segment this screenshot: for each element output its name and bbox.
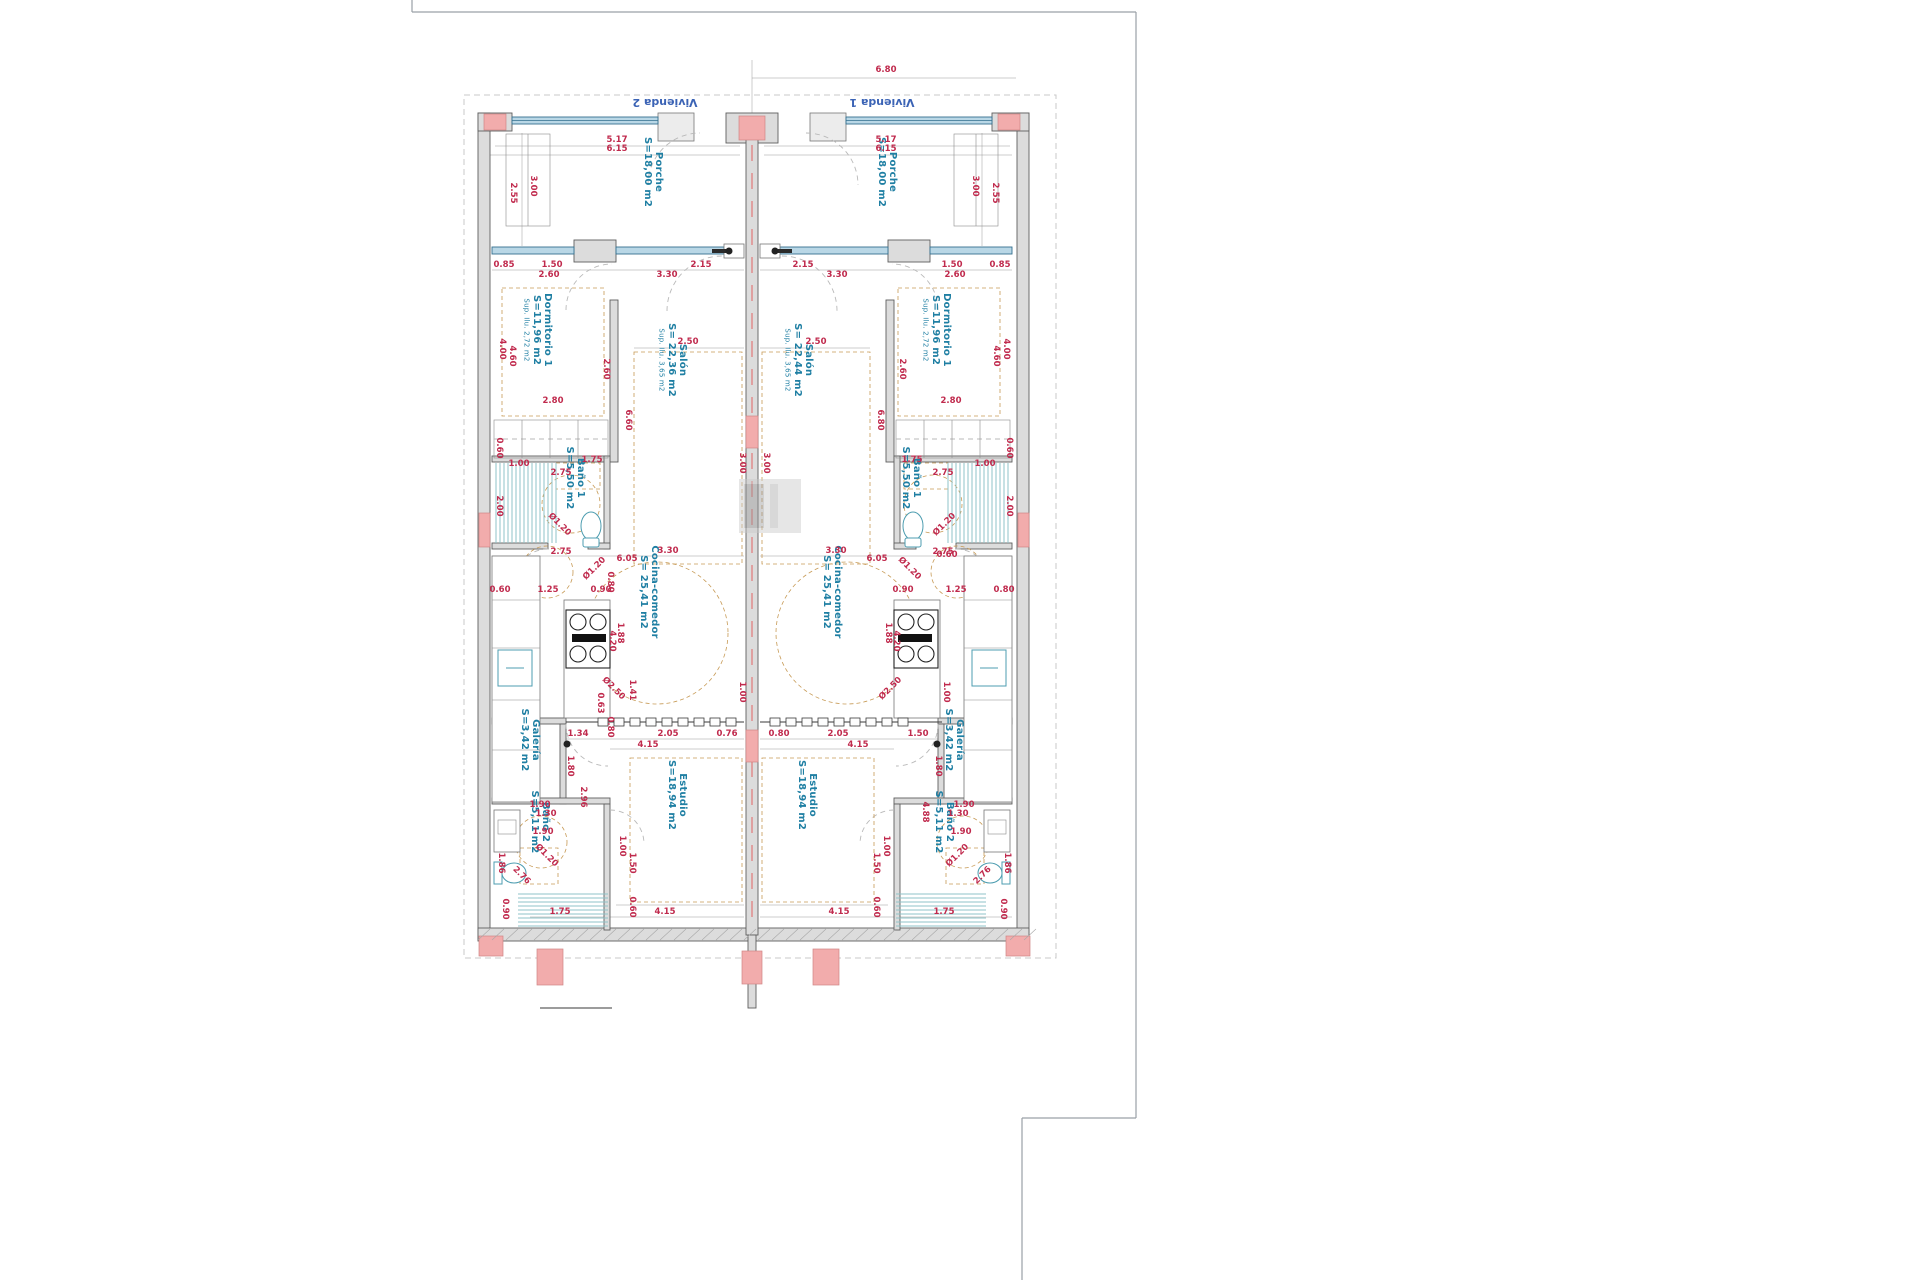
column [813, 949, 839, 985]
dimension-label: 2.80 [941, 396, 962, 406]
window [780, 247, 888, 254]
window [492, 247, 574, 254]
unit-titles: Vivienda 2 Vivienda 1 [632, 96, 914, 109]
door-hinge-icon [726, 248, 733, 255]
dimension-label: Ø1.20 [533, 841, 561, 869]
room-label-dormitorio1: Dormitorio 1S=11,96 m2Sup. Ilu. 2,72 m2 [922, 293, 953, 367]
dimension-label: 1.30 [536, 809, 557, 819]
room-label-salon_left: SalónS= 22,36 m2Sup. Ilu. 3,65 m2 [658, 323, 690, 397]
salon-zone [634, 352, 742, 564]
dimension-label: 2.80 [543, 396, 564, 406]
dimension-label: 4.20 [607, 631, 617, 652]
dimension-label: 2.50 [806, 337, 827, 347]
column [1006, 936, 1030, 956]
door-leaf [712, 249, 726, 253]
dimension-label: 2.60 [897, 359, 907, 380]
dimension-label: Ø1.20 [896, 554, 924, 582]
dimension-label: Ø1.20 [580, 554, 608, 582]
dimension-label: 0.63 [595, 693, 605, 714]
dimension-label: 1.90 [951, 827, 972, 837]
dimension-label: 3.30 [657, 270, 678, 280]
dimension-label: 1.75 [582, 455, 603, 465]
floor-plan-sheet: Vivienda 2 Vivienda 1 PorcheS=18,00 m2Po… [0, 0, 1920, 1280]
dimension-label: 1.00 [509, 459, 530, 469]
dimension-label: 1.00 [881, 836, 891, 857]
dimension-label: 1.25 [538, 585, 559, 595]
dimension-label: 3.00 [761, 453, 771, 474]
dimension-label: 2.05 [828, 729, 849, 739]
dimension-label: 1.00 [617, 836, 627, 857]
dimension-label: 4.60 [991, 346, 1001, 367]
column [479, 513, 490, 547]
dimension-label: 2.00 [1004, 496, 1014, 517]
dimension-label: 0.85 [990, 260, 1011, 270]
dimension-label: 2.75 [551, 468, 572, 478]
dimension-label: 0.60 [1004, 438, 1014, 459]
dimension-label: 3.00 [970, 176, 980, 197]
dimension-label: 6.15 [607, 144, 628, 154]
room-label-salon_right: SalónS= 22,44 m2Sup. Ilu. 3,65 m2 [784, 323, 816, 397]
dimension-label: 2.00 [494, 496, 504, 517]
floor-plan-drawing: Vivienda 2 Vivienda 1 PorcheS=18,00 m2Po… [0, 0, 1920, 1280]
dimension-label: 0.80 [994, 585, 1015, 595]
dimension-label: 6.05 [867, 554, 888, 564]
column [998, 114, 1020, 130]
dimension-label: 1.00 [975, 459, 996, 469]
dimension-label: 4.15 [638, 740, 659, 750]
dimension-label: 0.90 [591, 585, 612, 595]
dimension-label: 1.30 [948, 809, 969, 819]
dimension-label: 0.90 [893, 585, 914, 595]
dimension-label: 0.90 [500, 899, 510, 920]
column [1018, 513, 1029, 547]
dimension-label: Ø1.20 [943, 841, 971, 869]
dimension-label: 1.50 [871, 853, 881, 874]
dimension-label: 0.90 [998, 899, 1008, 920]
dimension-label: 1.86 [1002, 853, 1012, 874]
dimension-label: 2.15 [691, 260, 712, 270]
column [484, 114, 506, 130]
dimension-label: 6.80 [875, 410, 885, 431]
dimension-label: 3.00 [528, 176, 538, 197]
dimension-label: 1.00 [737, 682, 747, 703]
dimension-label: 6.15 [876, 144, 897, 154]
unit-title-vivienda-2: Vivienda 2 [632, 96, 697, 109]
dimension-label: 0.60 [627, 897, 637, 918]
dimension-label: 1.80 [565, 756, 575, 777]
column [537, 949, 563, 985]
room-label-cocina: Cocina-comedorS= 25,41 m2 [638, 545, 660, 638]
column [739, 116, 765, 140]
dimension-label: 4.00 [497, 339, 507, 360]
dimension-label: 1.41 [627, 680, 637, 701]
dimension-label: 4.15 [655, 907, 676, 917]
room-label-estudio: EstudioS=18,94 m2 [796, 760, 818, 830]
dimension-label: 2.96 [578, 787, 588, 808]
dimension-label: 1.80 [933, 756, 943, 777]
dimension-label: 2.55 [990, 183, 1000, 204]
dimension-label: 2.05 [658, 729, 679, 739]
dimension-label: 0.80 [605, 717, 615, 738]
dimension-label: 4.88 [920, 802, 930, 823]
dimension-label: 1.90 [533, 827, 554, 837]
door-hinge-icon [772, 248, 779, 255]
dimension-label: 0.85 [494, 260, 515, 270]
dimension-label: 3.30 [826, 546, 847, 556]
column [479, 936, 503, 956]
dimension-label: 6.60 [623, 410, 633, 431]
dimension-label: 1.50 [627, 853, 637, 874]
dimension-label: 2.60 [601, 359, 611, 380]
dimension-label: 3.30 [827, 270, 848, 280]
door-hinge-icon [934, 741, 941, 748]
door-leaf [778, 249, 792, 253]
dimension-label: 0.80 [769, 729, 790, 739]
dimension-label: Ø1.20 [546, 510, 574, 538]
dimension-label: 1.50 [542, 260, 563, 270]
dimension-label: 1.50 [942, 260, 963, 270]
dimension-label: 0.60 [871, 897, 881, 918]
dimension-label: 2.60 [945, 270, 966, 280]
dimension-label: 0.60 [937, 550, 958, 560]
dimension-label: 2.60 [539, 270, 560, 280]
dimension-label: 2.75 [551, 547, 572, 557]
room-label-dormitorio1: Dormitorio 1S=11,96 m2Sup. Ilu. 2,72 m2 [523, 293, 554, 367]
dimension-label: 3.00 [737, 453, 747, 474]
watermark [739, 479, 801, 533]
dimension-label: 4.15 [848, 740, 869, 750]
dimension-label: 2.50 [678, 337, 699, 347]
dimension-label: 0.60 [494, 438, 504, 459]
dimension-label: 0.76 [717, 729, 738, 739]
dimension-label: 1.75 [934, 907, 955, 917]
dimension-label: 4.15 [829, 907, 850, 917]
window [930, 247, 1012, 254]
dimension-label: 6.05 [617, 554, 638, 564]
column [746, 416, 758, 448]
dimension-label: 3.30 [658, 546, 679, 556]
dimension-label: 1.34 [568, 729, 589, 739]
door-hinge-icon [564, 741, 571, 748]
dimension-label: 2.55 [508, 183, 518, 204]
dimension-label: 1.25 [946, 585, 967, 595]
dorm-salon-wall-left [610, 300, 618, 462]
room-label-estudio: EstudioS=18,94 m2 [666, 760, 688, 830]
dimension-label: 1.75 [550, 907, 571, 917]
dimension-label: 6.80 [876, 65, 897, 75]
dimension-label: 4.20 [891, 631, 901, 652]
dimension-label: 4.60 [507, 346, 517, 367]
dimension-label: 4.00 [1001, 339, 1011, 360]
room-label-porche: PorcheS=18,00 m2 [642, 137, 664, 207]
dimension-label: 2.75 [933, 468, 954, 478]
column [742, 951, 762, 984]
dimension-label: 1.86 [496, 853, 506, 874]
dorm-salon-wall-right [886, 300, 894, 462]
dimension-label: 1.00 [941, 682, 951, 703]
room-label-cocina: Cocina-comedorS= 25,41 m2 [821, 545, 843, 638]
dimension-label: 2.15 [793, 260, 814, 270]
dimension-label: 1.75 [902, 455, 923, 465]
column [746, 730, 758, 762]
dimension-label: 0.60 [490, 585, 511, 595]
dimension-label: 1.50 [908, 729, 929, 739]
unit-title-vivienda-1: Vivienda 1 [849, 96, 914, 109]
window [616, 247, 724, 254]
